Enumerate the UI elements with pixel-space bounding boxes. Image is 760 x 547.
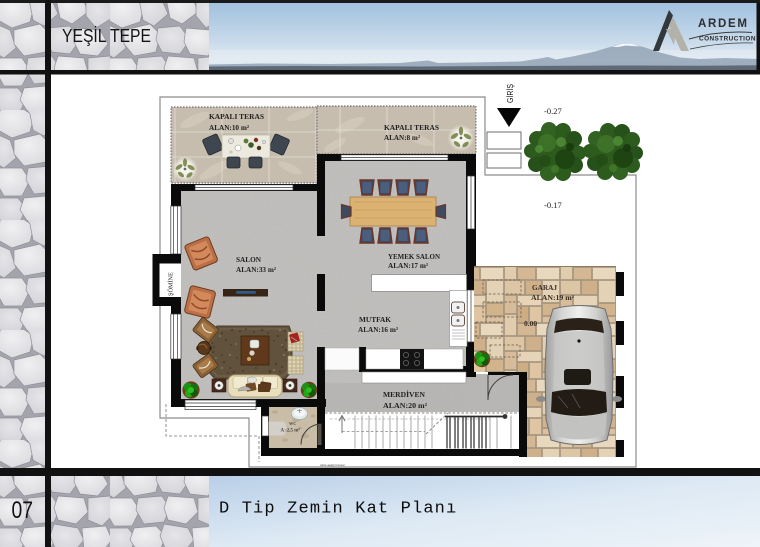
svg-text:MERDİVEN: MERDİVEN xyxy=(383,389,426,399)
svg-text:SALON: SALON xyxy=(236,255,262,264)
svg-text:-0.27: -0.27 xyxy=(544,106,562,116)
svg-text:07: 07 xyxy=(12,497,34,524)
svg-text:D Tip Zemin Kat Planı: D Tip Zemin Kat Planı xyxy=(219,500,457,519)
svg-text:ALAN:19 m²: ALAN:19 m² xyxy=(531,293,575,302)
svg-text:ARDEM: ARDEM xyxy=(698,18,749,30)
svg-text:0.00: 0.00 xyxy=(524,319,537,328)
svg-text:ALAN:17 m²: ALAN:17 m² xyxy=(388,261,429,270)
svg-text:üstte aşağı hissesi: üstte aşağı hissesi xyxy=(320,463,345,467)
svg-text:CONSTRUCTION: CONSTRUCTION xyxy=(699,36,756,43)
svg-text:ALAN:20 m²: ALAN:20 m² xyxy=(383,401,428,410)
svg-text:GARAJ: GARAJ xyxy=(532,283,557,292)
svg-text:WC: WC xyxy=(289,421,296,426)
svg-text:-0.17: -0.17 xyxy=(544,200,562,210)
svg-text:ALAN:33 m²: ALAN:33 m² xyxy=(236,265,277,274)
svg-text:ŞÖMİNE: ŞÖMİNE xyxy=(168,272,175,296)
svg-text:KAPALI TERAS: KAPALI TERAS xyxy=(209,112,264,121)
svg-text:KAPALI TERAS: KAPALI TERAS xyxy=(384,123,439,132)
svg-text:YEMEK SALON: YEMEK SALON xyxy=(388,252,441,261)
svg-text:ALAN:10 m²: ALAN:10 m² xyxy=(209,123,250,132)
svg-text:ALAN:8 m²: ALAN:8 m² xyxy=(384,133,421,142)
svg-text:ALAN:16 m²: ALAN:16 m² xyxy=(358,325,399,334)
svg-text:YEŞİL TEPE: YEŞİL TEPE xyxy=(62,26,151,46)
svg-text:A :2,5 m²: A :2,5 m² xyxy=(281,428,301,434)
svg-text:MUTFAK: MUTFAK xyxy=(359,315,391,324)
svg-text:GİRİŞ: GİRİŞ xyxy=(506,84,515,103)
